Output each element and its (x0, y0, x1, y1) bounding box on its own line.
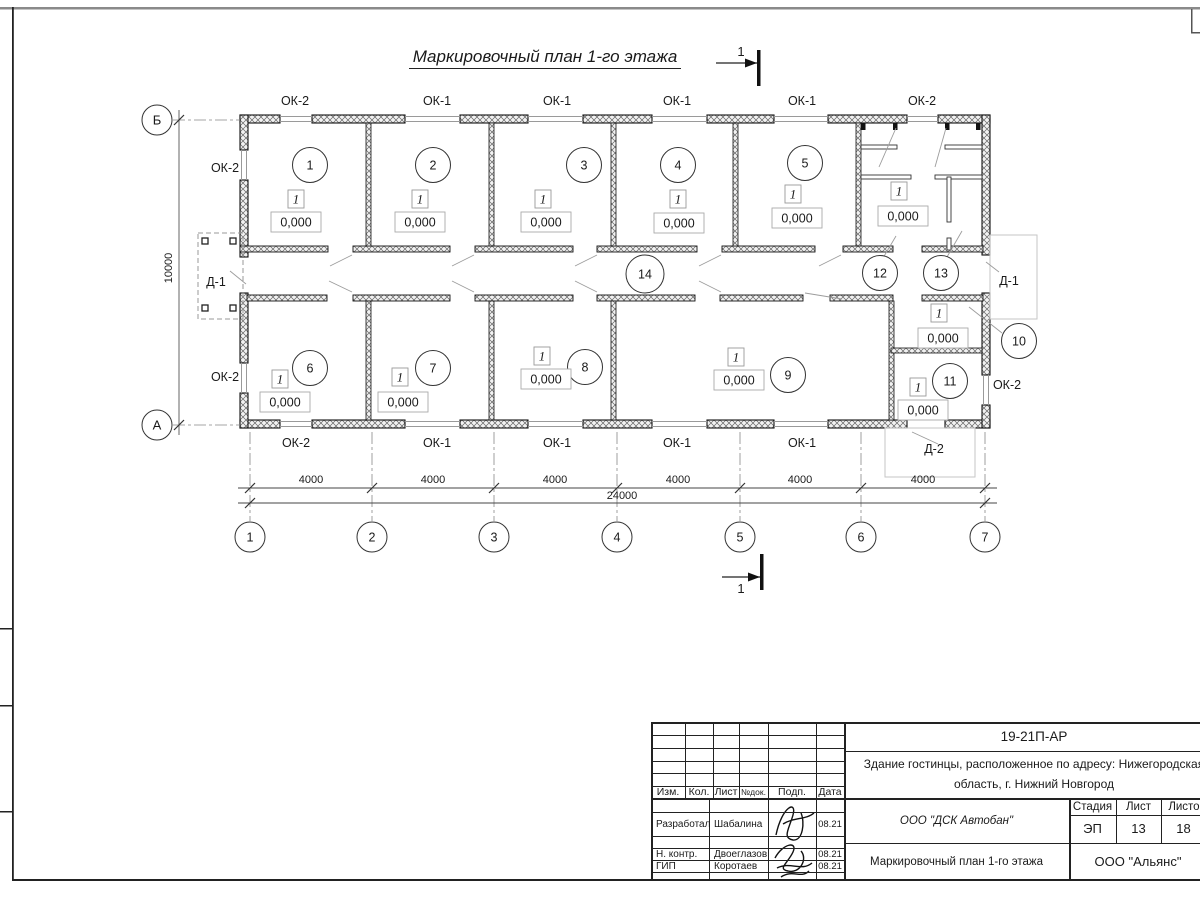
room-number: 10 (1012, 335, 1026, 349)
porch-column (230, 305, 236, 311)
signature-date: 08.21 (816, 860, 844, 872)
stage-value: ЭП (1069, 816, 1116, 841)
signature-role: Н. контр. (653, 848, 709, 860)
dimension-value: 4000 (666, 474, 690, 486)
wall-segment (366, 123, 371, 246)
dimension-value: 4000 (911, 474, 935, 486)
leader-line (330, 255, 352, 266)
axis-number: 7 (982, 531, 989, 545)
sheet-title: Маркировочный план 1-го этажа (846, 845, 1067, 879)
partition (861, 175, 911, 179)
door-jamb-tick (861, 123, 866, 130)
axis-letter: Б (153, 113, 162, 128)
door-mark-label: Д-2 (924, 442, 944, 456)
room-number: 14 (638, 268, 652, 282)
titleblock-line (844, 843, 1200, 844)
partition (935, 175, 982, 179)
wall-segment (891, 348, 982, 353)
elevation-value: 0,000 (781, 212, 812, 226)
wall-segment (366, 301, 371, 420)
wall-segment (240, 393, 248, 428)
axis-number: 4 (614, 531, 621, 545)
wall-segment (707, 115, 774, 123)
wall-segment (611, 301, 616, 420)
wall-segment (312, 420, 405, 428)
window-mark-label: ОК-2 (908, 94, 936, 108)
wall-segment (240, 293, 248, 363)
room-number: 4 (675, 159, 682, 173)
sheets-label: Листов (1161, 799, 1200, 815)
elevation-value: 0,000 (269, 396, 300, 410)
frame-margin-tick (0, 811, 12, 813)
floor-type-mark: 1 (790, 187, 797, 202)
section-mark-arrow (748, 573, 760, 582)
section-mark-arrow (745, 59, 757, 68)
wall-segment (240, 180, 248, 257)
titleblock-line (1161, 798, 1162, 843)
titleblock-line (651, 836, 844, 837)
titleblock-line (651, 798, 1200, 800)
sheets-total: 18 (1161, 816, 1200, 841)
sheet-number: 13 (1116, 816, 1161, 841)
wall-segment (247, 295, 327, 301)
floor-type-mark: 1 (936, 306, 943, 321)
leader-line (935, 128, 946, 167)
partition (947, 238, 951, 250)
wall-segment (889, 301, 894, 420)
floor-type-mark: 1 (675, 192, 682, 207)
room-number: 2 (430, 159, 437, 173)
dimension-value: 4000 (299, 474, 323, 486)
floor-type-mark: 1 (915, 380, 922, 395)
dimension-value: 4000 (788, 474, 812, 486)
leader-line (575, 255, 597, 266)
axis-number: 3 (491, 531, 498, 545)
wall-segment (722, 246, 815, 252)
wall-segment (489, 301, 494, 420)
wall-segment (460, 420, 528, 428)
window-mark-label: ОК-2 (281, 94, 309, 108)
partition (945, 145, 982, 149)
partition (861, 145, 897, 149)
partition (947, 177, 951, 222)
elevation-value: 0,000 (280, 216, 311, 230)
leader-line (986, 262, 999, 272)
frame-margin-tick (0, 628, 12, 630)
floor-type-mark: 1 (277, 372, 284, 387)
window-mark-label: ОК-1 (663, 94, 691, 108)
elevation-value: 0,000 (387, 396, 418, 410)
doc-number: 19-21П-АР (844, 722, 1200, 750)
window-mark-label: ОК-2 (211, 161, 239, 175)
titleblock-line (651, 761, 844, 762)
floor-type-mark: 1 (397, 370, 404, 385)
titleblock-line (651, 872, 844, 873)
door-jamb-tick (976, 123, 981, 130)
stage-label: Стадия (1069, 799, 1116, 815)
room-number: 1 (307, 159, 314, 173)
elevation-value: 0,000 (927, 332, 958, 346)
wall-segment (353, 246, 450, 252)
titleblock-line (651, 735, 844, 736)
axis-number: 6 (858, 531, 865, 545)
sheet-top-edge (0, 7, 1200, 10)
leader-line (230, 271, 246, 284)
window-mark-label: ОК-1 (788, 436, 816, 450)
window-mark-label: ОК-2 (211, 370, 239, 384)
dimension-total-value: 24000 (607, 490, 638, 502)
plan-title-text: Маркировочный план 1-го этажа (409, 47, 682, 69)
wall-segment (583, 420, 652, 428)
signature-role: ГИП (653, 860, 709, 872)
axis-letter: А (153, 418, 162, 433)
titleblock-line (651, 773, 844, 774)
titleblock-line (844, 722, 846, 881)
project-name-line2: область, г. Нижний Новгород (844, 774, 1200, 794)
signature-name: Двоеглазов (711, 848, 767, 860)
frame-bottom-line (12, 879, 1200, 881)
floor-type-mark: 1 (293, 192, 300, 207)
axis-number: 2 (369, 531, 376, 545)
elevation-value: 0,000 (723, 374, 754, 388)
room-number: 8 (582, 361, 589, 375)
door-mark-label: Д-1 (206, 275, 226, 289)
room-number: 7 (430, 362, 437, 376)
floor-type-mark: 1 (539, 349, 546, 364)
wall-segment (583, 115, 652, 123)
wall-segment (460, 115, 528, 123)
frame-corner-mark (1191, 9, 1193, 33)
window-mark-label: ОК-1 (543, 94, 571, 108)
leader-line (819, 255, 841, 266)
leader-line (452, 255, 474, 266)
floor-type-mark: 1 (733, 350, 740, 365)
change-table-header: №док. (739, 786, 768, 798)
dimension-vertical-value: 10000 (163, 253, 175, 284)
project-name-line1: Здание гостинцы, расположенное по адресу… (844, 754, 1200, 774)
wall-segment (489, 123, 494, 246)
wall-segment (353, 295, 450, 301)
customer-org: ООО "Альянс" (1069, 844, 1200, 879)
wall-segment (720, 295, 803, 301)
signature-date: 08.21 (816, 812, 844, 836)
porch-column (202, 305, 208, 311)
elevation-value: 0,000 (907, 404, 938, 418)
room-number: 9 (785, 369, 792, 383)
change-table-header: Лист (713, 786, 739, 798)
signature-role: Разработал (653, 812, 709, 836)
leader-line (699, 255, 721, 266)
wall-segment (856, 123, 861, 246)
porch-column (230, 238, 236, 244)
signature-name: Шабалина (711, 812, 767, 836)
section-mark-number: 1 (737, 581, 744, 596)
titleblock-line (1116, 798, 1117, 843)
wall-segment (597, 295, 695, 301)
window-mark-label: ОК-2 (993, 378, 1021, 392)
wall-segment (830, 295, 893, 301)
titleblock-line (844, 751, 1200, 752)
room-number: 13 (934, 267, 948, 281)
wall-segment (475, 246, 573, 252)
wall-segment (312, 115, 405, 123)
titleblock-line (768, 722, 769, 881)
contractor-company: ООО "ДСК Автобан" (846, 800, 1067, 841)
signature-name: Коротаев (711, 860, 767, 872)
frame-left-line (12, 7, 14, 881)
room-number: 5 (802, 157, 809, 171)
wall-segment (828, 115, 907, 123)
room-number: 3 (581, 159, 588, 173)
leader-line (575, 281, 597, 292)
window-mark-label: ОК-1 (788, 94, 816, 108)
section-mark-bar (757, 50, 761, 86)
wall-segment (707, 420, 774, 428)
section-mark-number: 1 (737, 44, 744, 59)
elevation-value: 0,000 (663, 217, 694, 231)
elevation-value: 0,000 (530, 373, 561, 387)
titleblock-line (651, 722, 1200, 724)
wall-segment (982, 293, 990, 375)
drawing-sheet: { "sheet": { "title": "Маркировочный пла… (0, 0, 1200, 900)
wall-segment (843, 246, 893, 252)
plan-title: Маркировочный план 1-го этажа (400, 47, 690, 67)
wall-segment (922, 295, 983, 301)
change-table-header: Изм. (651, 786, 685, 798)
axis-number: 5 (737, 531, 744, 545)
dimension-value: 4000 (421, 474, 445, 486)
room-number: 12 (873, 267, 887, 281)
elevation-value: 0,000 (530, 216, 561, 230)
wall-segment (828, 420, 907, 428)
wall-segment (597, 246, 697, 252)
leader-line (699, 281, 721, 292)
wall-segment (475, 295, 573, 301)
section-mark-bar (760, 554, 764, 590)
window-mark-label: ОК-1 (543, 436, 571, 450)
window-mark-label: ОК-1 (663, 436, 691, 450)
change-table-header: Кол. (685, 786, 713, 798)
floor-type-mark: 1 (896, 184, 903, 199)
window-mark-label: ОК-1 (423, 94, 451, 108)
dimension-value: 4000 (543, 474, 567, 486)
floor-type-mark: 1 (417, 192, 424, 207)
wall-segment (240, 115, 248, 150)
wall-segment (733, 123, 738, 246)
elevation-value: 0,000 (887, 210, 918, 224)
wall-segment (982, 405, 990, 428)
titleblock-line (1069, 798, 1071, 881)
titleblock-line (651, 748, 844, 749)
frame-corner-mark (1191, 32, 1200, 34)
room-number: 11 (944, 375, 957, 389)
wall-segment (240, 246, 328, 252)
change-table-header: Подп. (768, 786, 816, 798)
door-mark-label: Д-1 (999, 274, 1019, 288)
room-number: 6 (307, 362, 314, 376)
signature-date: 08.21 (816, 848, 844, 860)
titleblock-line (1069, 815, 1200, 816)
sheet-label: Лист (1116, 799, 1161, 815)
frame-margin-tick (0, 705, 12, 707)
elevation-value: 0,000 (404, 216, 435, 230)
floor-type-mark: 1 (540, 192, 547, 207)
window-mark-label: ОК-2 (282, 436, 310, 450)
change-table-header: Дата (816, 786, 844, 798)
porch-column (202, 238, 208, 244)
wall-segment (611, 123, 616, 246)
leader-line (329, 281, 352, 292)
axis-number: 1 (247, 531, 254, 545)
leader-line (452, 281, 474, 292)
wall-segment (982, 115, 990, 255)
window-mark-label: ОК-1 (423, 436, 451, 450)
